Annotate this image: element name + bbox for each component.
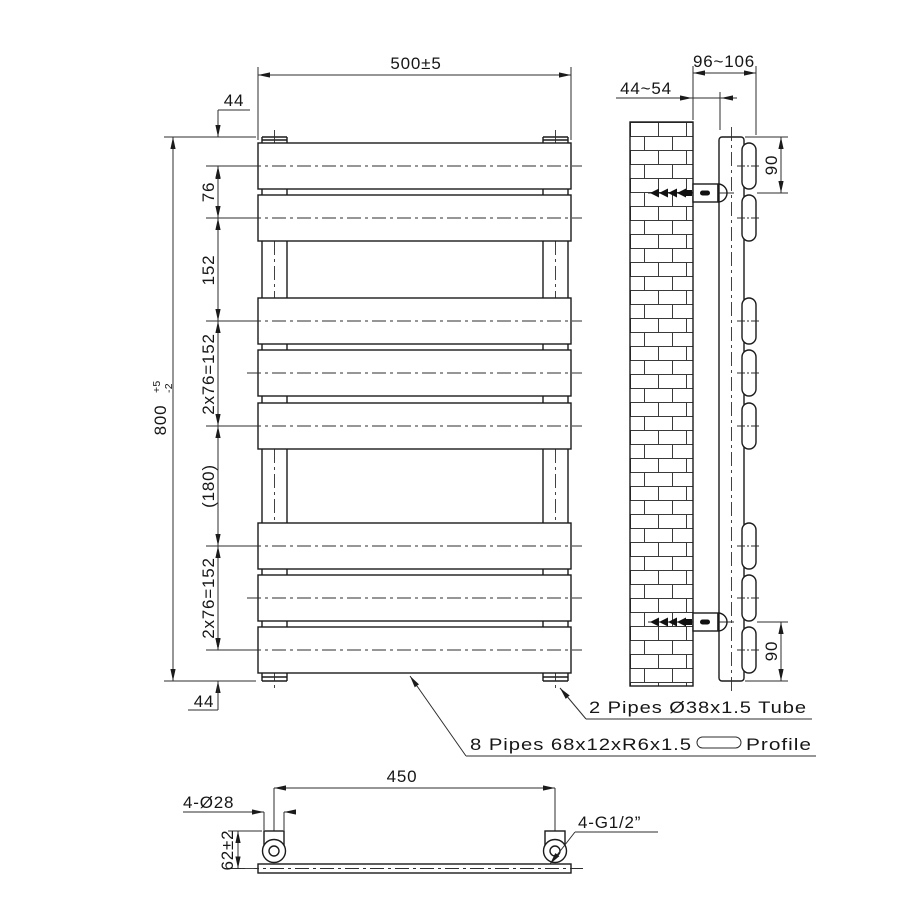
profile-section-symbol: [697, 737, 741, 748]
bottom-view: 450 4-Ø28 62±2 4-G1/2”: [183, 767, 658, 873]
note-profile-spec-label: 8 Pipes 68x12xR6x1.5: [470, 735, 692, 754]
dim-total-depth-label: 96~106: [693, 52, 755, 71]
radiator-rails: [247, 143, 582, 673]
label-thread-text: 4-G1/2”: [578, 813, 641, 832]
label-thread: 4-G1/2”: [550, 813, 658, 864]
dim-rail-pitch-76-label: 76: [199, 182, 218, 203]
side-view: 96~106 44~54 90 90: [616, 52, 788, 691]
note-tube-spec: 2 Pipes Ø38x1.5 Tube: [560, 688, 812, 719]
dim-connection-centres-label: 450: [387, 767, 418, 786]
note-tube-spec-label: 2 Pipes Ø38x1.5 Tube: [589, 698, 807, 717]
dim-overall-width-label: 500±5: [390, 54, 441, 73]
drawing-canvas: 500±5 800 +5 -2 44 76 152: [0, 0, 900, 900]
connection-boss-right: [544, 788, 567, 863]
front-view: 500±5 800 +5 -2 44 76 152: [151, 54, 816, 756]
dim-wall-clearance-label: 44~54: [620, 79, 672, 98]
dim-connection-height-label: 62±2: [218, 830, 237, 871]
dim-bracket-top-label: 90: [762, 155, 781, 176]
dim-connection-height: 62±2: [218, 830, 262, 871]
dim-rail-pitch-2x76-upper-label: 2x76=152: [199, 333, 218, 415]
dim-height-tol-down: -2: [163, 383, 175, 393]
connection-boss-left: [263, 788, 286, 863]
dim-rail-pitch-152-label: 152: [199, 255, 218, 286]
radiator-technical-drawing: 500±5 800 +5 -2 44 76 152: [0, 0, 900, 900]
note-profile-suffix-label: Profile: [746, 735, 812, 754]
dim-overall-width: 500±5: [258, 54, 571, 140]
dim-holes-label: 4-Ø28: [183, 793, 234, 812]
dim-overall-height-label: 800: [151, 405, 170, 436]
dim-total-depth: 96~106: [693, 52, 756, 135]
dim-centre-gap-180-label: (180): [199, 464, 218, 508]
dim-rail-pitch-2x76-lower-label: 2x76=152: [199, 557, 218, 639]
brick-wall: [630, 122, 693, 686]
dim-bracket-bottom-label: 90: [762, 641, 781, 662]
dim-connection-centres: 450: [274, 767, 555, 788]
dim-bottom-offset-label: 44: [194, 692, 215, 711]
dim-height-tol-up: +5: [151, 381, 163, 393]
dim-holes: 4-Ø28: [183, 793, 296, 830]
dim-top-offset-label: 44: [224, 91, 245, 110]
dim-chain: 44 76 152 2x76=152 (180) 2x76=152 44: [188, 91, 250, 711]
